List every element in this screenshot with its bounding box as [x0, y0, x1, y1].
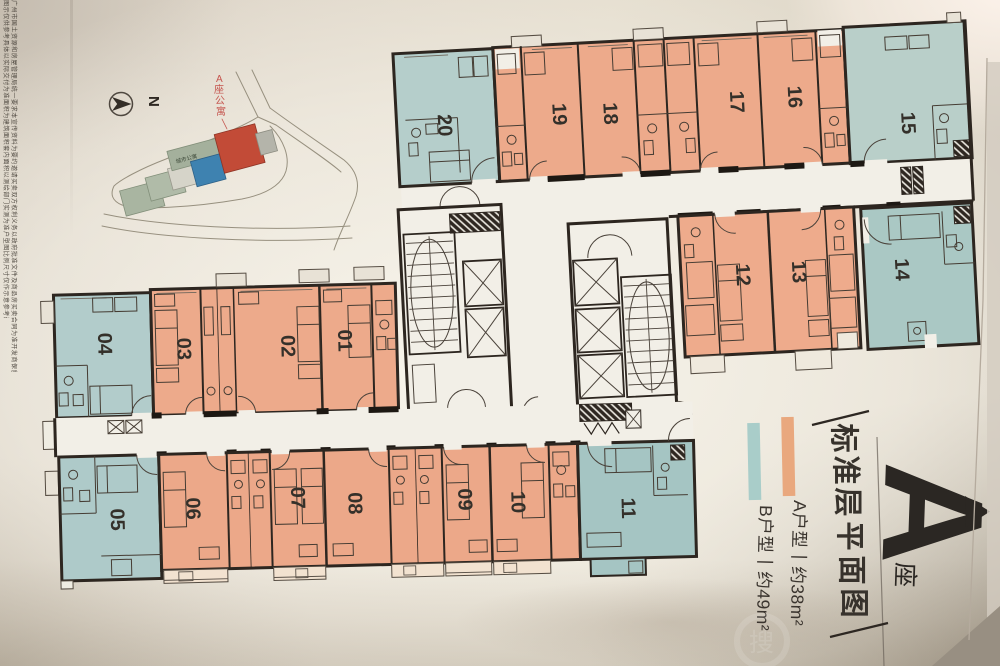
- svg-text:04: 04: [93, 332, 116, 356]
- svg-text:20: 20: [433, 114, 456, 137]
- svg-text:标: 标: [827, 423, 860, 452]
- svg-text:16: 16: [783, 85, 806, 108]
- svg-text:12: 12: [731, 263, 754, 286]
- svg-text:寓: 寓: [216, 105, 226, 118]
- svg-text:19: 19: [547, 103, 570, 126]
- svg-text:13: 13: [787, 260, 810, 283]
- svg-text:座: 座: [890, 562, 919, 588]
- svg-text:08: 08: [343, 492, 366, 515]
- svg-text:07: 07: [286, 486, 309, 509]
- svg-text:18: 18: [598, 102, 621, 125]
- svg-text:03: 03: [172, 337, 195, 360]
- svg-text:公: 公: [215, 96, 225, 107]
- svg-text:02: 02: [276, 335, 299, 358]
- svg-text:05: 05: [106, 508, 129, 531]
- svg-text:11: 11: [616, 497, 639, 519]
- svg-text:B户型丨约49m²: B户型丨约49m²: [753, 505, 776, 632]
- svg-text:06: 06: [181, 497, 204, 520]
- svg-text:14: 14: [890, 258, 913, 282]
- svg-text:01: 01: [333, 329, 356, 352]
- svg-text:10: 10: [506, 491, 529, 514]
- svg-text:N: N: [145, 96, 162, 107]
- svg-text:15: 15: [896, 111, 919, 134]
- svg-text:搜: 搜: [749, 629, 774, 657]
- svg-text:图: 图: [837, 588, 869, 617]
- svg-text:09: 09: [453, 488, 476, 511]
- svg-text:A户型丨约38m²: A户型丨约38m²: [787, 500, 810, 627]
- svg-text:A: A: [216, 74, 223, 85]
- svg-text:座: 座: [214, 83, 224, 96]
- svg-text:17: 17: [725, 90, 748, 113]
